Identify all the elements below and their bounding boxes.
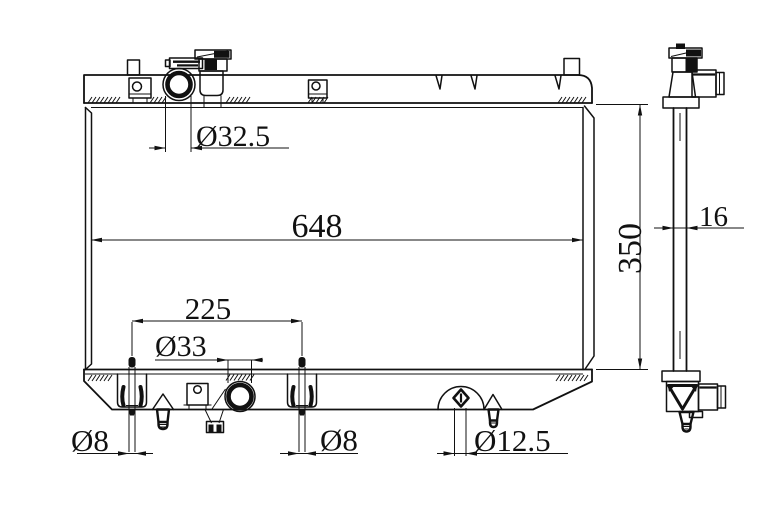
front-view: [84, 50, 594, 452]
dim-label-pin-right-diameter: Ø8: [320, 423, 358, 458]
dim-label-outlet-diameter: Ø33: [155, 330, 207, 363]
side-bottom-tank: [662, 371, 703, 418]
dim-pin-left-diameter: Ø8: [71, 423, 153, 458]
core-left-inner-edge: [86, 108, 92, 370]
radiator-drawing: Ø32.5 648 350 225: [0, 0, 768, 516]
dim-core-width: 648: [91, 208, 583, 245]
side-filler-neck: [663, 44, 702, 109]
mounting-pin-left: [118, 357, 147, 452]
bottom-tank-outline: [84, 370, 592, 410]
serration-hatch-bottom: [88, 375, 588, 382]
dim-label-drain-diameter: Ø12.5: [474, 423, 551, 458]
dim-label-core-thickness: 16: [699, 201, 728, 233]
dim-label-pin-spacing: 225: [185, 291, 232, 326]
outlet-port: [225, 382, 255, 412]
dim-outlet-diameter: Ø33: [155, 330, 263, 383]
mounting-tab-right: [564, 59, 580, 76]
dim-label-pin-left-diameter: Ø8: [71, 423, 109, 458]
side-inlet-pipe: [692, 70, 724, 97]
dimensions: Ø32.5 648 350 225: [71, 96, 744, 458]
side-outlet-pipe: [699, 384, 726, 410]
mounting-tab-left: [128, 60, 140, 75]
mounting-bracket-left: [129, 78, 151, 103]
mounting-pin-right: [288, 357, 317, 452]
bottom-strut: [212, 389, 226, 409]
dim-inlet-diameter: Ø32.5: [149, 96, 289, 153]
side-core-strip: [674, 108, 687, 371]
dim-label-core-width: 648: [292, 208, 343, 245]
dim-core-height: 350: [596, 105, 649, 370]
dim-label-inlet-diameter: Ø32.5: [196, 120, 270, 153]
top-tank: [84, 50, 592, 108]
clip-notches: [436, 76, 561, 90]
side-drain-plug: [680, 412, 694, 432]
inlet-port: [163, 69, 195, 101]
dim-core-thickness: 16: [654, 201, 744, 233]
drawing-canvas: Ø32.5 648 350 225: [0, 0, 768, 516]
side-view: [662, 44, 726, 432]
filler-neck: [200, 71, 223, 107]
drain-plug-left: [153, 394, 174, 429]
dim-drain-diameter: Ø12.5: [437, 408, 568, 458]
core-right-outer-edge: [585, 106, 595, 369]
dim-pin-right-diameter: Ø8: [280, 423, 358, 458]
dim-label-core-height: 350: [612, 223, 649, 274]
bottom-bracket: [184, 384, 212, 410]
drain-recess: [438, 387, 484, 410]
bottom-foot: [205, 410, 224, 433]
